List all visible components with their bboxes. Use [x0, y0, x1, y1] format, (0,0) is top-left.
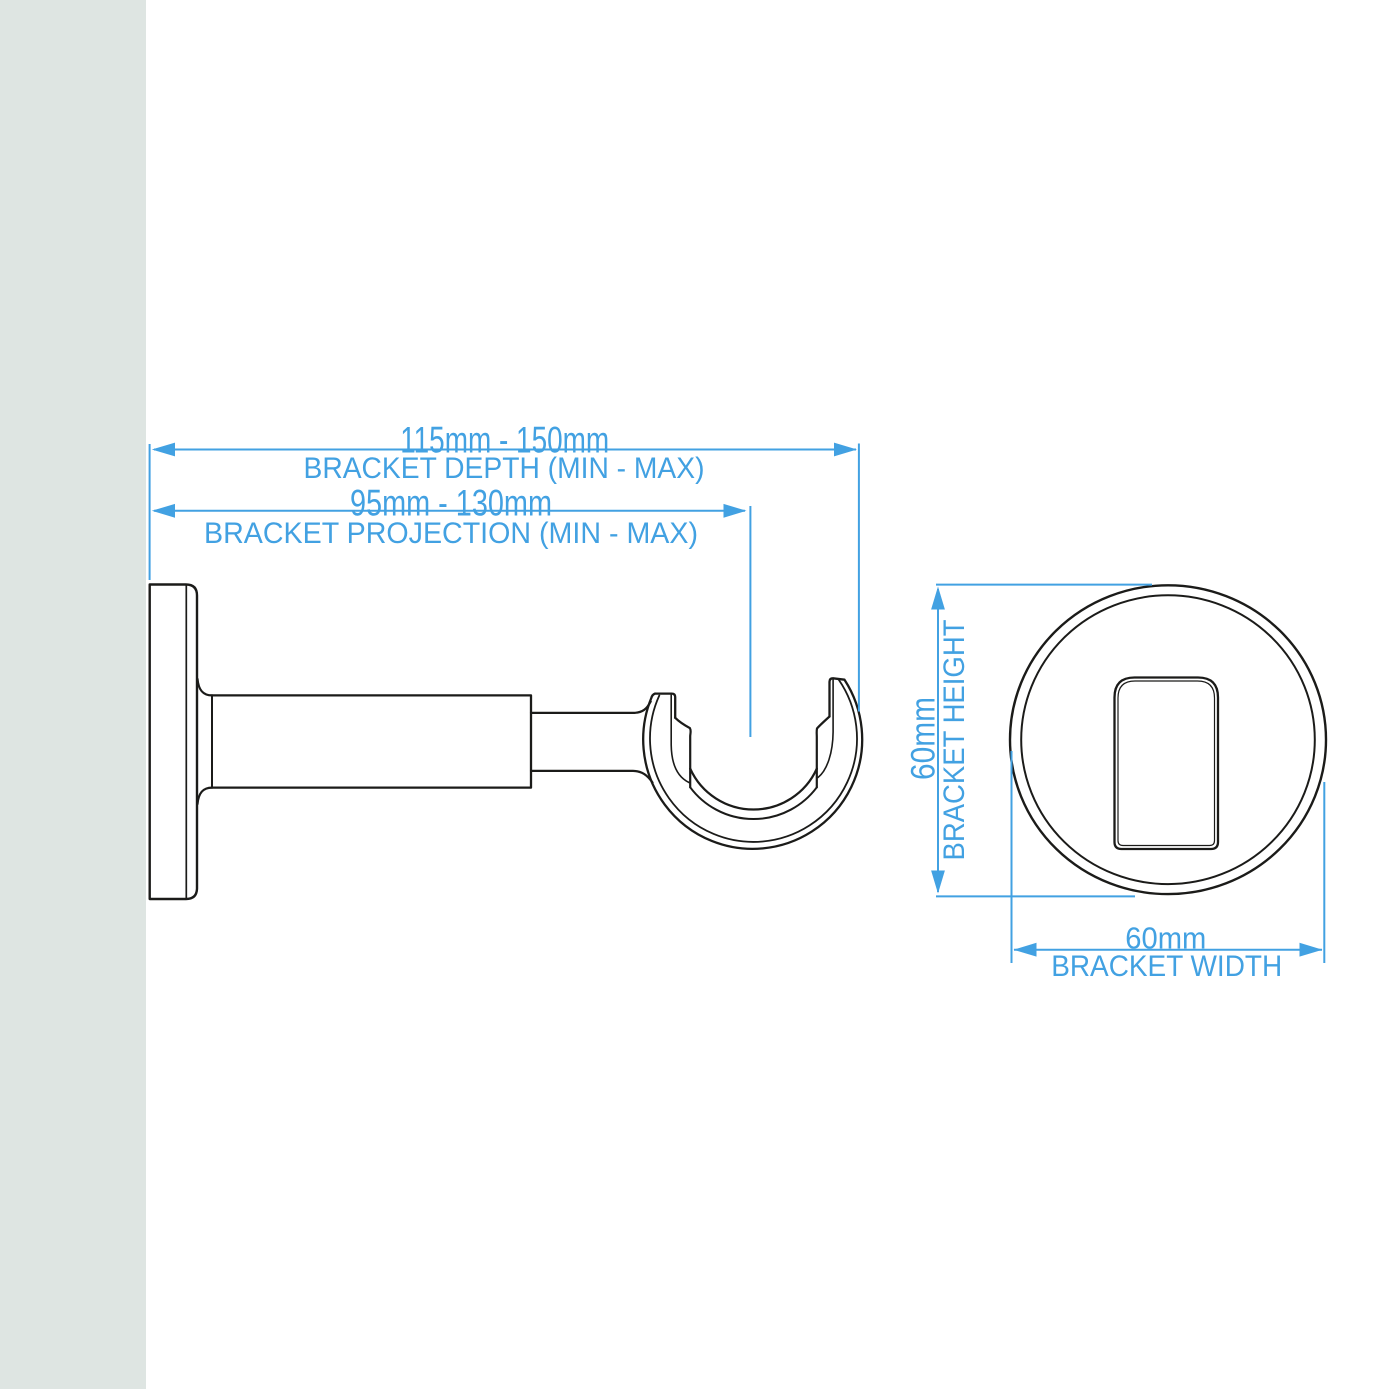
svg-text:BRACKET DEPTH (MIN - MAX): BRACKET DEPTH (MIN - MAX) — [304, 452, 705, 485]
svg-text:BRACKET PROJECTION (MIN - MAX): BRACKET PROJECTION (MIN - MAX) — [204, 517, 698, 550]
svg-text:BRACKET WIDTH: BRACKET WIDTH — [1051, 951, 1282, 983]
svg-text:BRACKET HEIGHT: BRACKET HEIGHT — [938, 620, 971, 861]
svg-text:60mm: 60mm — [905, 697, 943, 780]
